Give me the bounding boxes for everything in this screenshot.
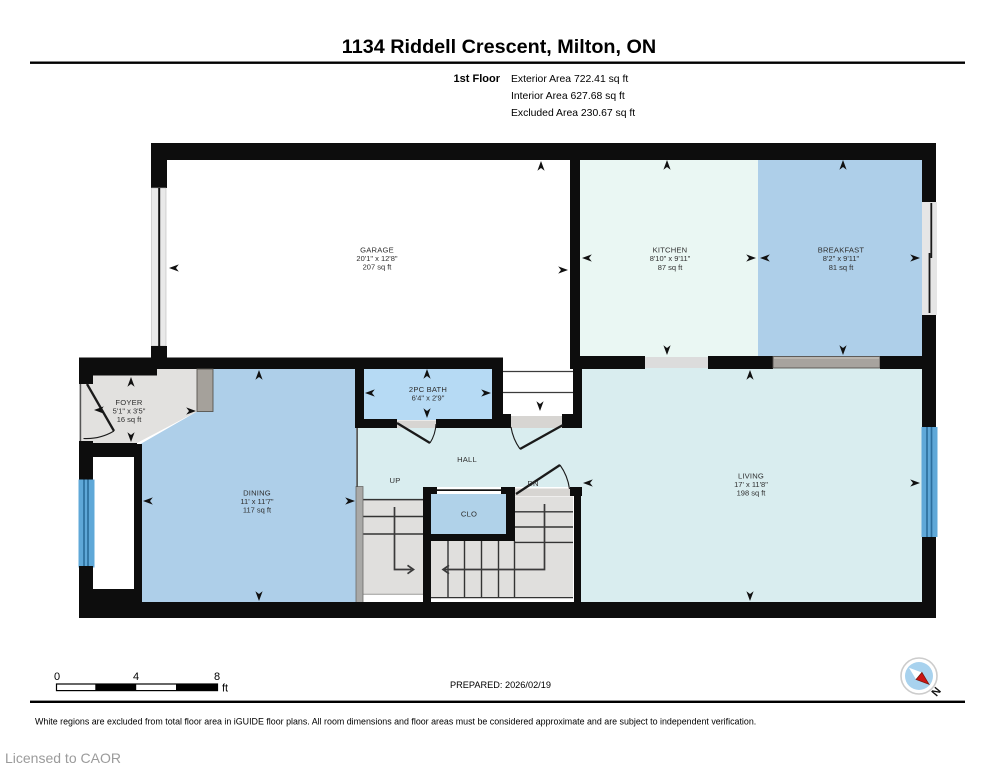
svg-text:CLO: CLO: [461, 510, 477, 519]
svg-text:1134 Riddell Crescent, Milton,: 1134 Riddell Crescent, Milton, ON: [342, 36, 656, 58]
svg-text:Exterior Area 722.41 sq ft: Exterior Area 722.41 sq ft: [511, 74, 628, 85]
svg-text:Excluded Area 230.67 sq ft: Excluded Area 230.67 sq ft: [511, 108, 635, 119]
svg-text:UP: UP: [390, 476, 401, 485]
svg-text:PREPARED: 2026/02/19: PREPARED: 2026/02/19: [450, 680, 551, 690]
svg-text:HALL: HALL: [457, 455, 477, 464]
svg-text:81 sq ft: 81 sq ft: [829, 263, 855, 272]
svg-text:87 sq ft: 87 sq ft: [658, 263, 684, 272]
svg-text:DN: DN: [527, 479, 538, 488]
svg-text:Interior Area 627.68 sq ft: Interior Area 627.68 sq ft: [511, 91, 625, 102]
svg-text:8: 8: [214, 671, 220, 683]
svg-text:White regions are excluded fro: White regions are excluded from total fl…: [35, 717, 756, 727]
svg-text:207 sq ft: 207 sq ft: [363, 262, 393, 271]
svg-text:0: 0: [54, 671, 60, 683]
svg-text:8'10" x 9'11": 8'10" x 9'11": [650, 254, 691, 263]
svg-text:198 sq ft: 198 sq ft: [737, 489, 767, 498]
svg-text:4: 4: [133, 671, 139, 683]
svg-text:16 sq ft: 16 sq ft: [117, 415, 143, 424]
svg-text:117 sq ft: 117 sq ft: [243, 506, 272, 515]
svg-text:ft: ft: [222, 683, 228, 695]
svg-text:6'4" x 2'9": 6'4" x 2'9": [412, 394, 445, 403]
svg-text:Licensed to CAOR: Licensed to CAOR: [5, 750, 121, 766]
svg-text:8'2" x 9'11": 8'2" x 9'11": [823, 254, 860, 263]
svg-text:1st Floor: 1st Floor: [454, 73, 501, 85]
